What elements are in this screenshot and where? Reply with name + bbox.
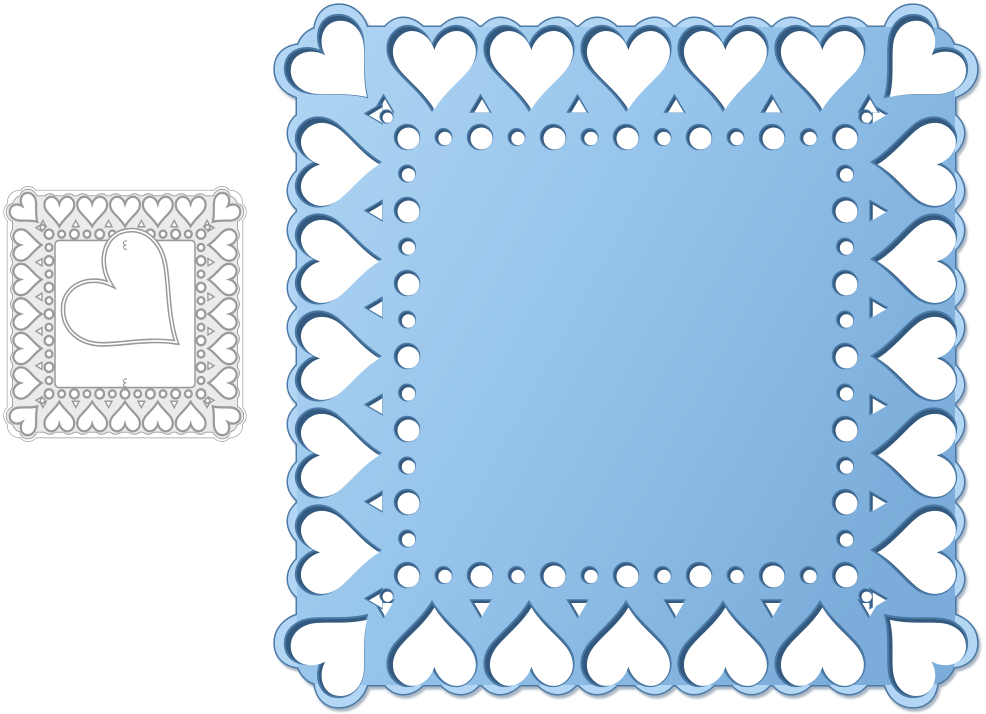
product-photo (0, 0, 986, 714)
metal-die-image (0, 183, 250, 446)
product-scene (0, 0, 986, 714)
blue-cutout-image (264, 0, 986, 714)
